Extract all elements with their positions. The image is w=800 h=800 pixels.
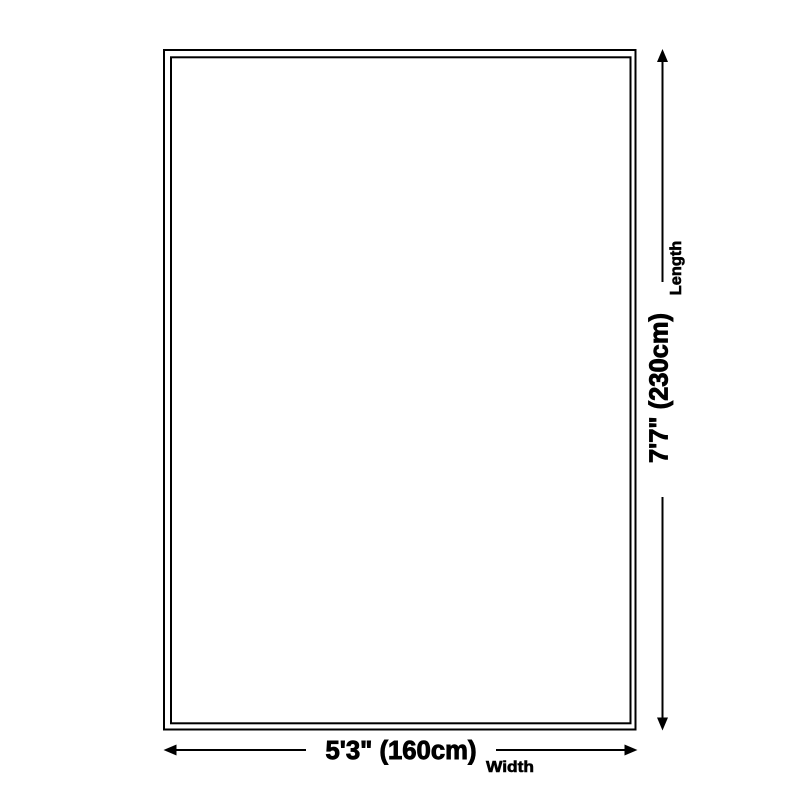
svg-text:5'3" (160cm): 5'3" (160cm)	[326, 737, 477, 765]
svg-text:7'7" (230cm): 7'7" (230cm)	[644, 313, 674, 463]
svg-text:Width: Width	[486, 759, 534, 776]
svg-text:Length: Length	[668, 241, 685, 296]
